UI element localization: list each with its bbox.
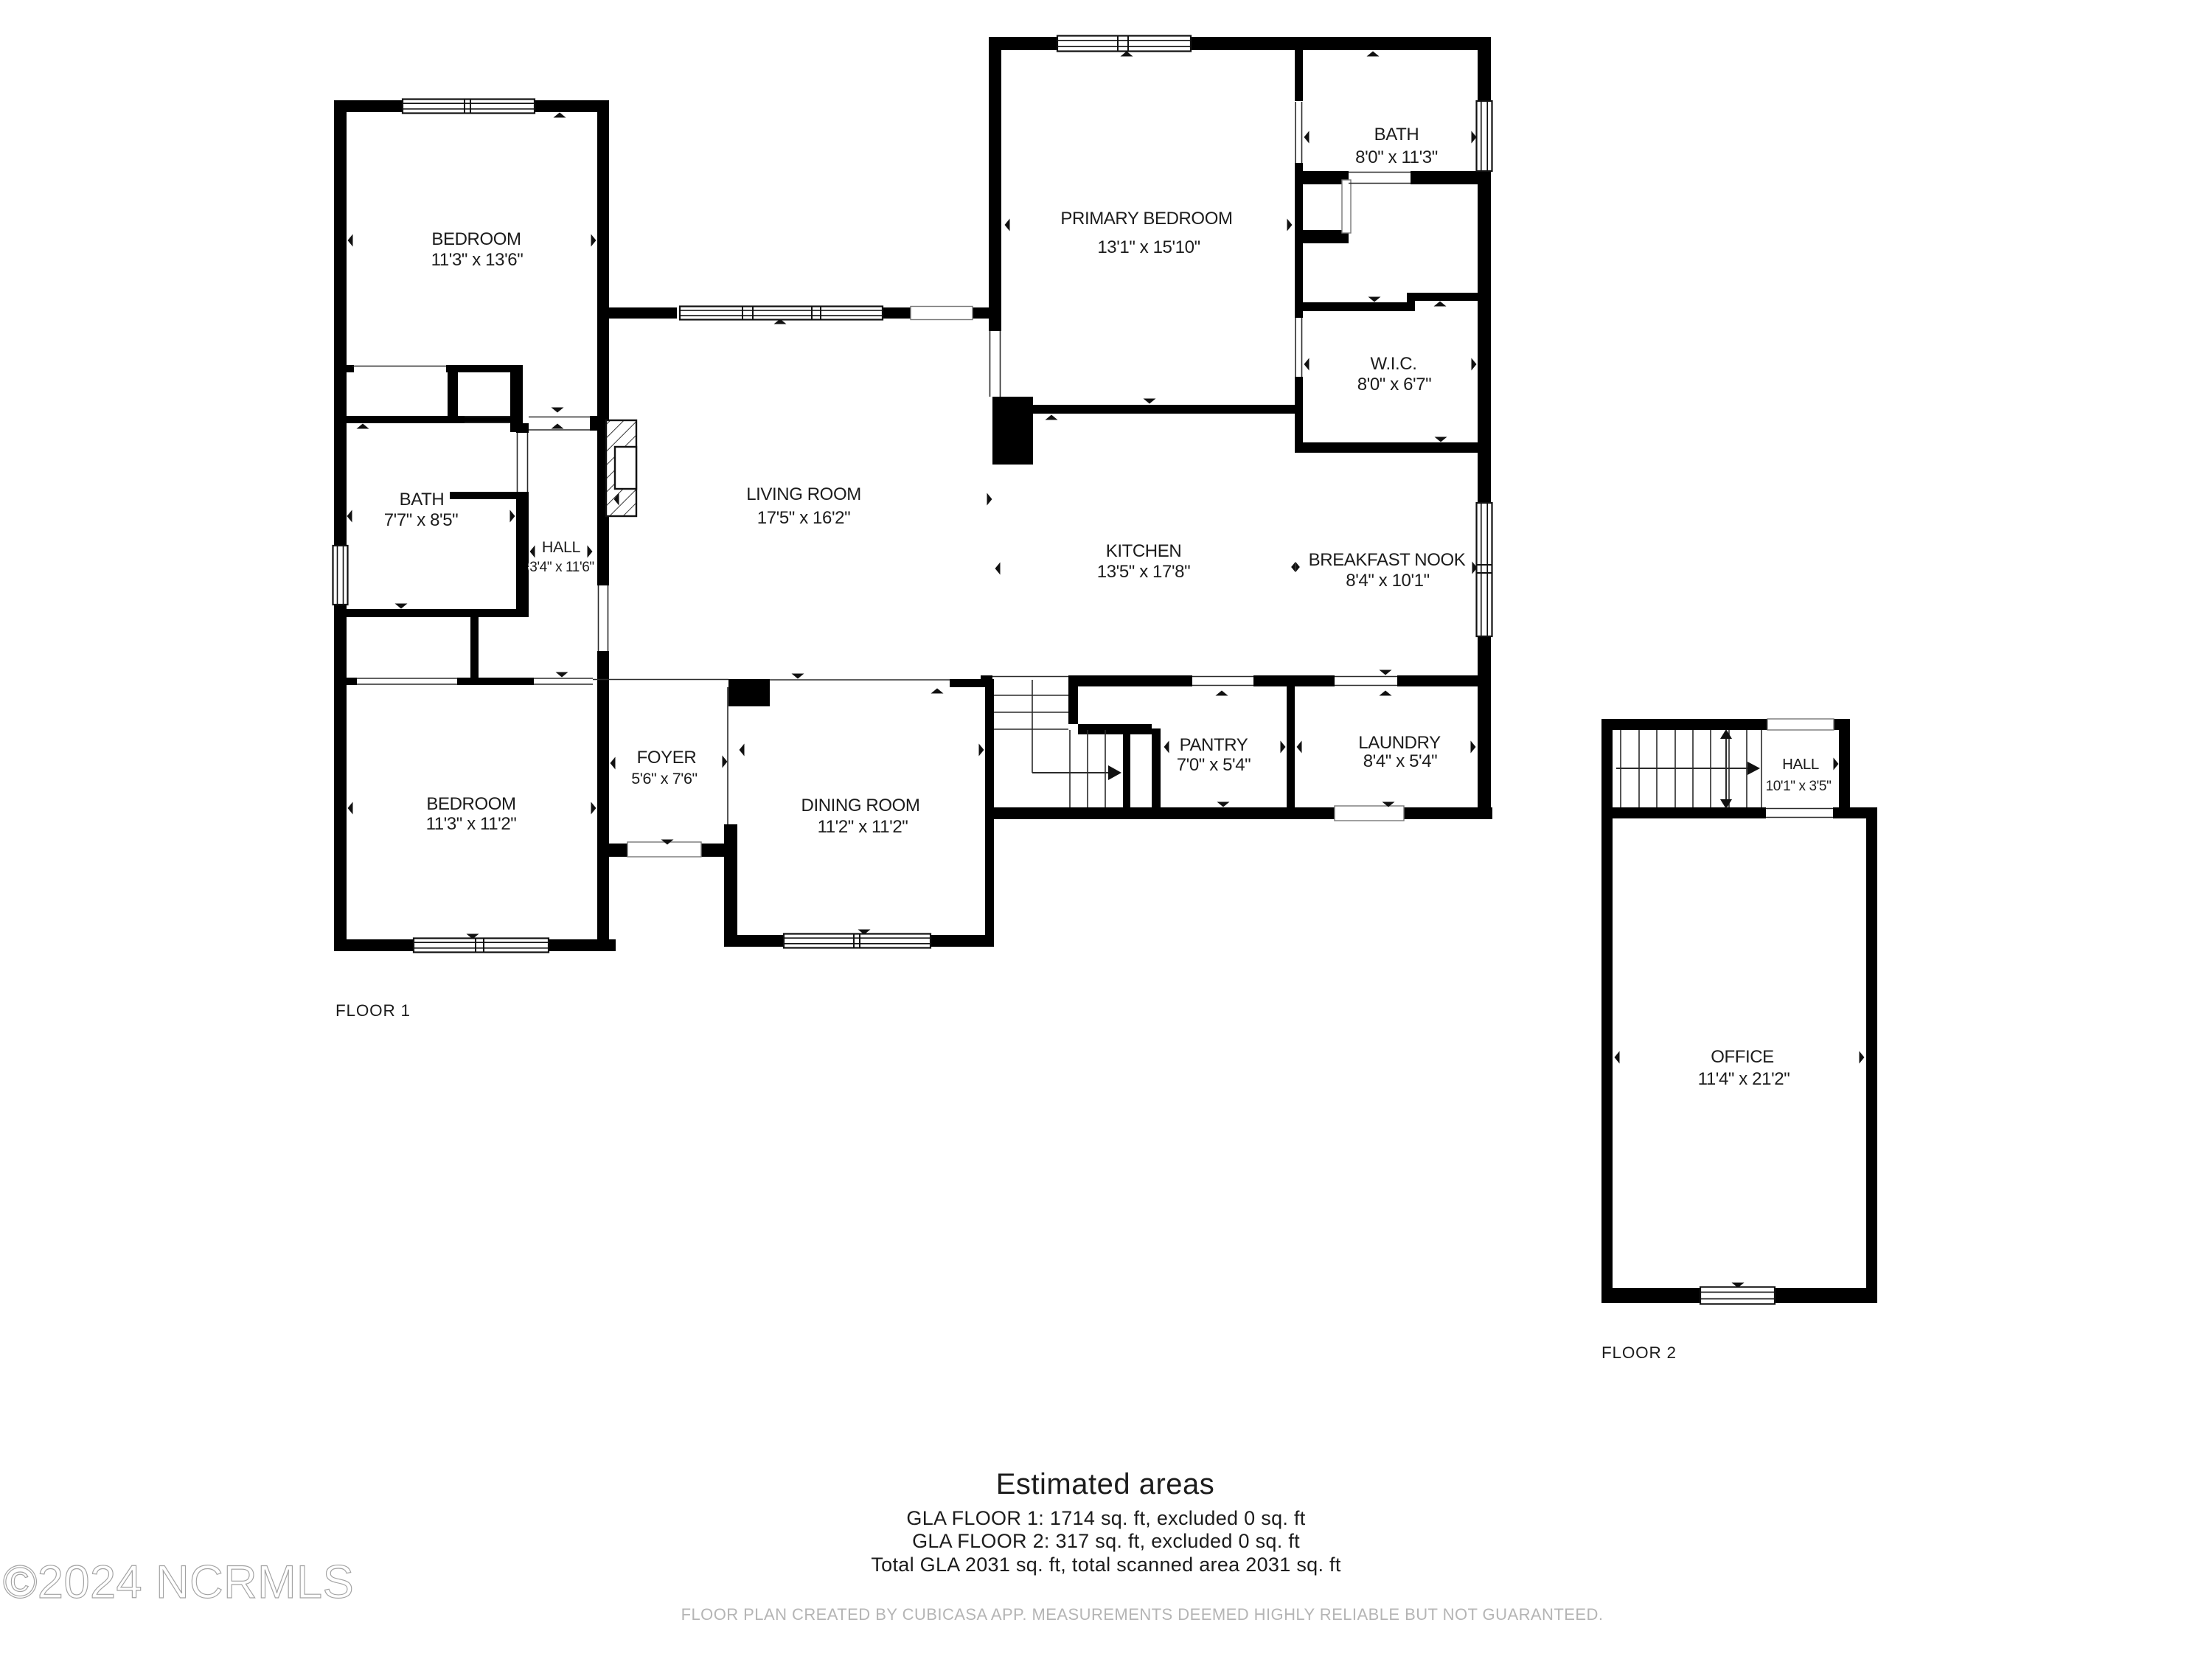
svg-text:13'5" x 17'8": 13'5" x 17'8" (1097, 562, 1190, 582)
svg-text:FLOOR 1: FLOOR 1 (335, 1001, 411, 1020)
svg-text:11'4" x 21'2": 11'4" x 21'2" (1698, 1069, 1790, 1089)
svg-text:KITCHEN: KITCHEN (1106, 541, 1182, 561)
svg-text:Total GLA 2031 sq. ft, total s: Total GLA 2031 sq. ft, total scanned are… (871, 1554, 1341, 1576)
svg-text:11'3" x 13'6": 11'3" x 13'6" (431, 250, 524, 270)
svg-text:7'0" x 5'4": 7'0" x 5'4" (1177, 755, 1251, 775)
svg-text:FOYER: FOYER (637, 748, 697, 768)
svg-text:FLOOR 2: FLOOR 2 (1601, 1343, 1677, 1362)
svg-text:GLA FLOOR 1: 1714 sq. ft, excl: GLA FLOOR 1: 1714 sq. ft, excluded 0 sq.… (906, 1507, 1305, 1529)
svg-text:PANTRY: PANTRY (1180, 735, 1248, 755)
svg-text:5'6" x 7'6": 5'6" x 7'6" (631, 770, 698, 787)
svg-text:8'4" x 5'4": 8'4" x 5'4" (1363, 751, 1438, 771)
svg-text:OFFICE: OFFICE (1711, 1047, 1774, 1067)
svg-text:Estimated areas: Estimated areas (996, 1468, 1215, 1500)
svg-text:W.I.C.: W.I.C. (1371, 354, 1417, 374)
svg-text:LAUNDRY: LAUNDRY (1358, 733, 1441, 753)
svg-text:8'0" x 6'7": 8'0" x 6'7" (1357, 375, 1432, 394)
svg-text:11'3" x 11'2": 11'3" x 11'2" (426, 814, 517, 834)
svg-text:GLA FLOOR 2: 317 sq. ft, exclu: GLA FLOOR 2: 317 sq. ft, excluded 0 sq. … (912, 1530, 1300, 1552)
svg-text:7'7" x 8'5": 7'7" x 8'5" (384, 510, 459, 530)
svg-text:HALL: HALL (1782, 756, 1819, 773)
svg-text:BATH: BATH (400, 490, 445, 509)
svg-text:BREAKFAST NOOK: BREAKFAST NOOK (1309, 550, 1466, 570)
svg-text:LIVING ROOM: LIVING ROOM (746, 484, 861, 504)
svg-text:PRIMARY BEDROOM: PRIMARY BEDROOM (1060, 209, 1232, 229)
svg-text:11'2" x 11'2": 11'2" x 11'2" (818, 817, 908, 837)
svg-text:©2024 NCRMLS: ©2024 NCRMLS (3, 1557, 354, 1608)
svg-text:3'4" x 11'6": 3'4" x 11'6" (529, 560, 594, 575)
svg-text:8'4" x 10'1": 8'4" x 10'1" (1346, 571, 1429, 591)
svg-text:13'1" x 15'10": 13'1" x 15'10" (1097, 237, 1200, 257)
svg-text:8'0" x 11'3": 8'0" x 11'3" (1355, 147, 1438, 167)
svg-text:BATH: BATH (1374, 125, 1419, 145)
svg-text:DINING ROOM: DINING ROOM (801, 796, 920, 815)
svg-text:10'1" x 3'5": 10'1" x 3'5" (1766, 779, 1832, 794)
svg-text:17'5" x 16'2": 17'5" x 16'2" (757, 508, 850, 528)
svg-text:BEDROOM: BEDROOM (431, 229, 521, 249)
svg-text:BEDROOM: BEDROOM (426, 794, 515, 814)
svg-text:HALL: HALL (542, 538, 581, 556)
svg-text:FLOOR PLAN CREATED BY CUBICASA: FLOOR PLAN CREATED BY CUBICASA APP. MEAS… (681, 1605, 1604, 1624)
